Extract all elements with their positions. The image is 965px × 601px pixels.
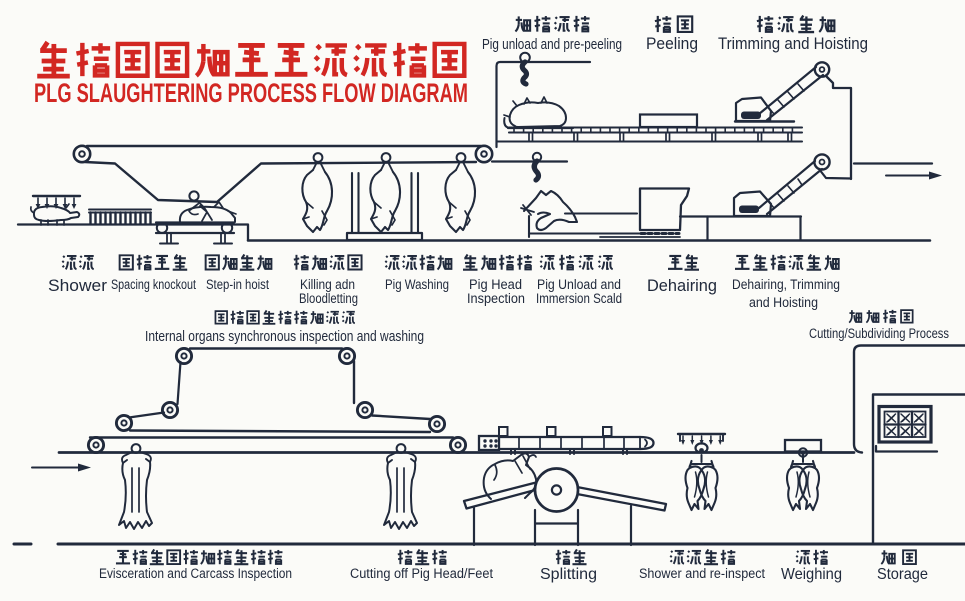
svg-text:Pig Washing: Pig Washing — [385, 277, 449, 292]
svg-text:and Hoisting: and Hoisting — [749, 295, 818, 310]
svg-text:Inspection: Inspection — [467, 291, 525, 306]
svg-text:Shower and re-inspect: Shower and re-inspect — [639, 566, 765, 581]
svg-text:Spacing knockout: Spacing knockout — [111, 277, 196, 292]
svg-text:Peeling: Peeling — [646, 34, 698, 53]
svg-text:PLG SLAUGHTERING PROCESS FLOW: PLG SLAUGHTERING PROCESS FLOW DIAGRAM — [34, 78, 468, 108]
svg-text:Immersion Scald: Immersion Scald — [536, 291, 622, 306]
svg-text:Shower: Shower — [48, 277, 108, 295]
svg-text:Bloodletting: Bloodletting — [299, 291, 358, 306]
svg-text:Dehairing: Dehairing — [647, 277, 717, 295]
svg-text:Pig Head: Pig Head — [469, 277, 522, 292]
svg-text:Step-in hoist: Step-in hoist — [206, 277, 269, 292]
svg-text:Killing adn: Killing adn — [300, 277, 355, 292]
svg-text:Trimming and Hoisting: Trimming and Hoisting — [718, 34, 868, 53]
svg-text:Pig Unload and: Pig Unload and — [537, 277, 621, 292]
svg-text:Cutting/Subdividing Process: Cutting/Subdividing Process — [809, 326, 949, 341]
svg-text:Internal organs synchronous in: Internal organs synchronous inspection a… — [145, 329, 424, 345]
svg-text:Evisceration and Carcass Inspe: Evisceration and Carcass Inspection — [99, 566, 292, 581]
svg-text:Weighing: Weighing — [781, 566, 842, 583]
svg-text:Splitting: Splitting — [540, 566, 597, 583]
svg-text:Pig unload and pre-peeling: Pig unload and pre-peeling — [482, 37, 622, 53]
svg-text:Storage: Storage — [877, 566, 928, 583]
svg-text:Cutting off Pig Head/Feet: Cutting off Pig Head/Feet — [350, 566, 493, 581]
svg-text:Dehairing, Trimming: Dehairing, Trimming — [732, 277, 840, 292]
